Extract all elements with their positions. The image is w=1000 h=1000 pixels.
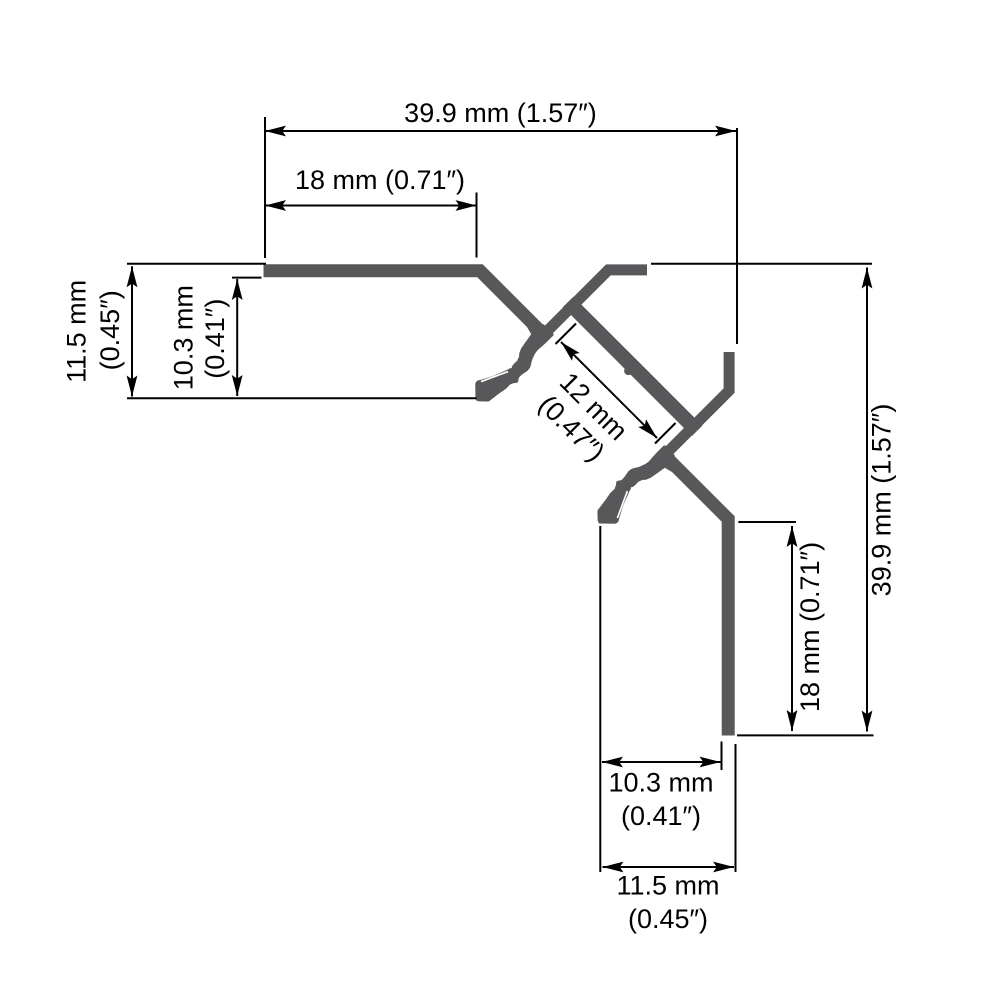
svg-text:(0.41″): (0.41″) <box>200 299 230 379</box>
svg-text:39.9 mm (1.57″): 39.9 mm (1.57″) <box>867 404 897 597</box>
svg-text:18 mm (0.71″): 18 mm (0.71″) <box>795 542 825 712</box>
svg-text:11.5 mm: 11.5 mm <box>62 280 92 383</box>
svg-text:(0.45″): (0.45″) <box>628 904 708 934</box>
svg-text:39.9 mm (1.57″): 39.9 mm (1.57″) <box>404 98 597 128</box>
svg-text:(0.41″): (0.41″) <box>621 801 701 831</box>
svg-text:11.5 mm: 11.5 mm <box>616 871 719 901</box>
svg-text:(0.45″): (0.45″) <box>95 290 125 370</box>
svg-text:18 mm (0.71″): 18 mm (0.71″) <box>295 165 465 195</box>
svg-text:10.3 mm: 10.3 mm <box>608 768 713 798</box>
svg-text:10.3 mm: 10.3 mm <box>169 285 199 390</box>
